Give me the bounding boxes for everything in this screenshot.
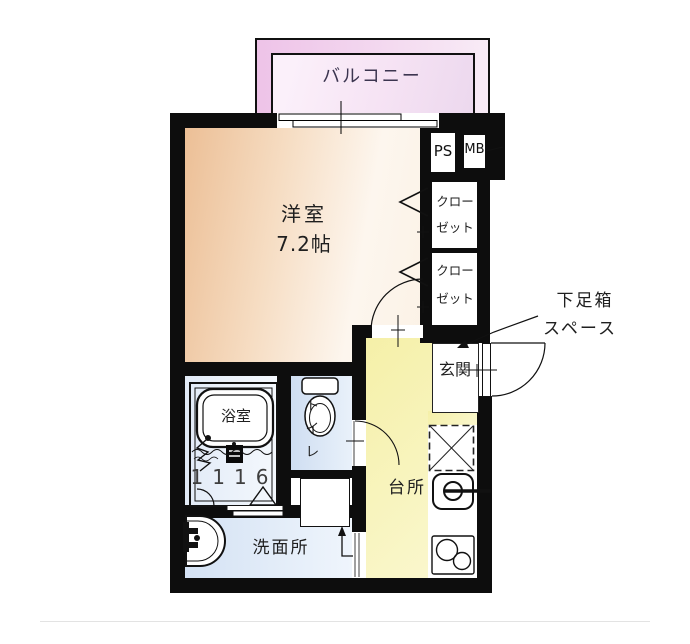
ps-label: PS <box>431 143 455 160</box>
room-kitchen-door-opening <box>372 325 423 338</box>
washroom-label: 洗面所 <box>221 539 341 558</box>
room-size-label: 7.2帖 <box>204 233 404 255</box>
bathroom-size-label: 1116 <box>186 466 282 488</box>
shoebox-label-2: スペース <box>530 320 630 339</box>
closet-upper-label-1: クロー <box>434 195 476 209</box>
closet-upper-box <box>432 182 477 248</box>
entrance-label: 玄関 <box>433 361 477 379</box>
wall-room-bottom <box>170 362 366 376</box>
wall-left <box>170 113 185 593</box>
bathroom-label: 浴室 <box>206 408 266 425</box>
floorplan-canvas: バルコニー 洋室 7.2帖 PS MB クロー ゼット クロー ゼット 下足箱 … <box>0 0 690 644</box>
closet-upper-label-2: ゼット <box>434 221 476 235</box>
washing-machine-space <box>300 478 350 527</box>
closet-lower-label-2: ゼット <box>434 292 476 306</box>
toilet-label: トイレ <box>303 386 318 478</box>
toilet-area <box>291 376 352 470</box>
room-label: 洋室 <box>204 203 404 225</box>
wall-right-lower <box>477 396 492 593</box>
mb-label: MB <box>463 143 486 157</box>
kitchen-counter-strip <box>428 425 477 578</box>
window-opening <box>277 113 439 128</box>
wall-under-toilet <box>291 470 352 478</box>
closet-lower-label-1: クロー <box>434 264 476 278</box>
washroom-kitchen-opening <box>352 532 366 578</box>
kitchen-label: 台所 <box>367 479 447 498</box>
kitchen-area <box>366 338 432 578</box>
wall-bottom <box>170 578 492 593</box>
entrance-door-slab <box>482 343 491 397</box>
balcony-label: バルコニー <box>272 67 472 87</box>
kitchen-area-sliver <box>428 411 477 425</box>
page-artifact-line <box>40 621 650 622</box>
toilet-door-opening <box>352 420 366 466</box>
shoebox-label-1: 下足箱 <box>535 292 635 311</box>
